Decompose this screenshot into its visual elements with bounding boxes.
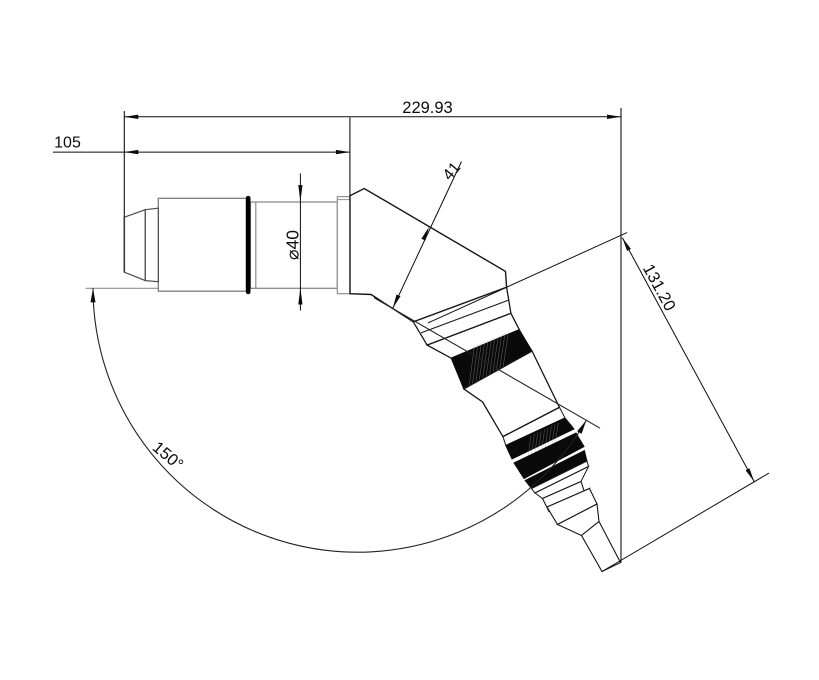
svg-text:229.93: 229.93: [402, 99, 452, 117]
svg-text:⌀40: ⌀40: [282, 230, 302, 260]
svg-text:105: 105: [54, 135, 81, 152]
